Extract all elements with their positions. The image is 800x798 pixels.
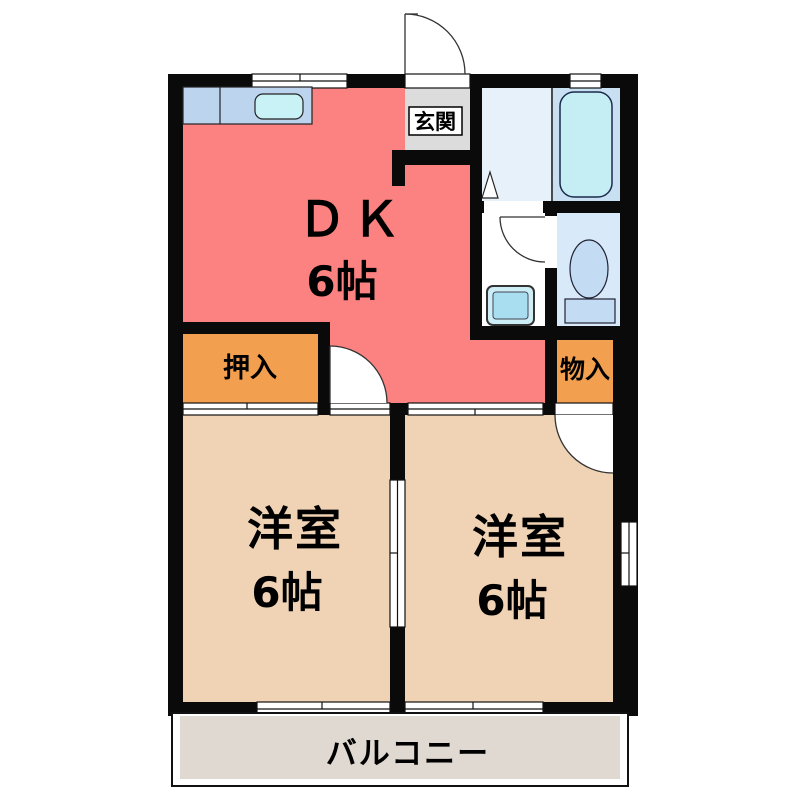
- wall-genkan-stub: [392, 150, 405, 186]
- label-room-right: 洋室: [472, 510, 568, 564]
- wall-oshiire-right: [318, 334, 330, 415]
- window-kitchen: [252, 74, 347, 88]
- bathtub: [560, 92, 612, 197]
- opening-right-room-door: [555, 403, 613, 415]
- wall-hall-bottom: [470, 326, 620, 340]
- label-oshiire: 押入: [223, 353, 277, 384]
- kitchen-counter: [183, 87, 312, 124]
- floorplan: ＤＫ 6帖 洋室 6帖 洋室 6帖 玄関 押入 物入 バルコニー: [0, 0, 800, 798]
- wall-genkan-right: [470, 74, 482, 213]
- wall-top: [168, 74, 638, 88]
- wall-left: [168, 74, 183, 716]
- wall-hall-left: [470, 213, 482, 326]
- entrance-sill: [405, 74, 470, 88]
- room-dk-extension: [470, 340, 545, 403]
- label-dk: ＤＫ: [298, 192, 406, 248]
- label-genkan: 玄関: [414, 110, 456, 134]
- opening-washroom-hall: [484, 201, 543, 213]
- label-dk-size: 6帖: [306, 257, 377, 306]
- genkan-label-box: 玄関: [409, 107, 462, 135]
- washing-machine: [487, 286, 534, 325]
- sliding-door-oshiire: [183, 403, 318, 415]
- label-room-left: 洋室: [247, 502, 343, 556]
- kitchen-sink: [255, 94, 303, 119]
- floorplan-page: ＤＫ 6帖 洋室 6帖 洋室 6帖 玄関 押入 物入 バルコニー: [0, 0, 800, 798]
- wall-right: [620, 74, 638, 716]
- label-balcony: バルコニー: [326, 736, 490, 772]
- opening-toilet-door: [545, 216, 557, 268]
- wall-right-inner: [613, 334, 620, 716]
- label-room-left-size: 6帖: [251, 568, 322, 617]
- label-room-right-size: 6帖: [476, 576, 547, 625]
- window-right-wall: [621, 522, 637, 586]
- label-monoire: 物入: [560, 355, 610, 384]
- sliding-door-dk-right: [408, 403, 543, 415]
- entrance-door: [405, 14, 465, 74]
- sliding-door-partition: [390, 480, 405, 627]
- opening-dk-left-room: [330, 403, 390, 415]
- wall-monoire-left: [545, 340, 557, 403]
- wall-oshiire-top: [183, 322, 330, 334]
- window-bath: [570, 74, 601, 88]
